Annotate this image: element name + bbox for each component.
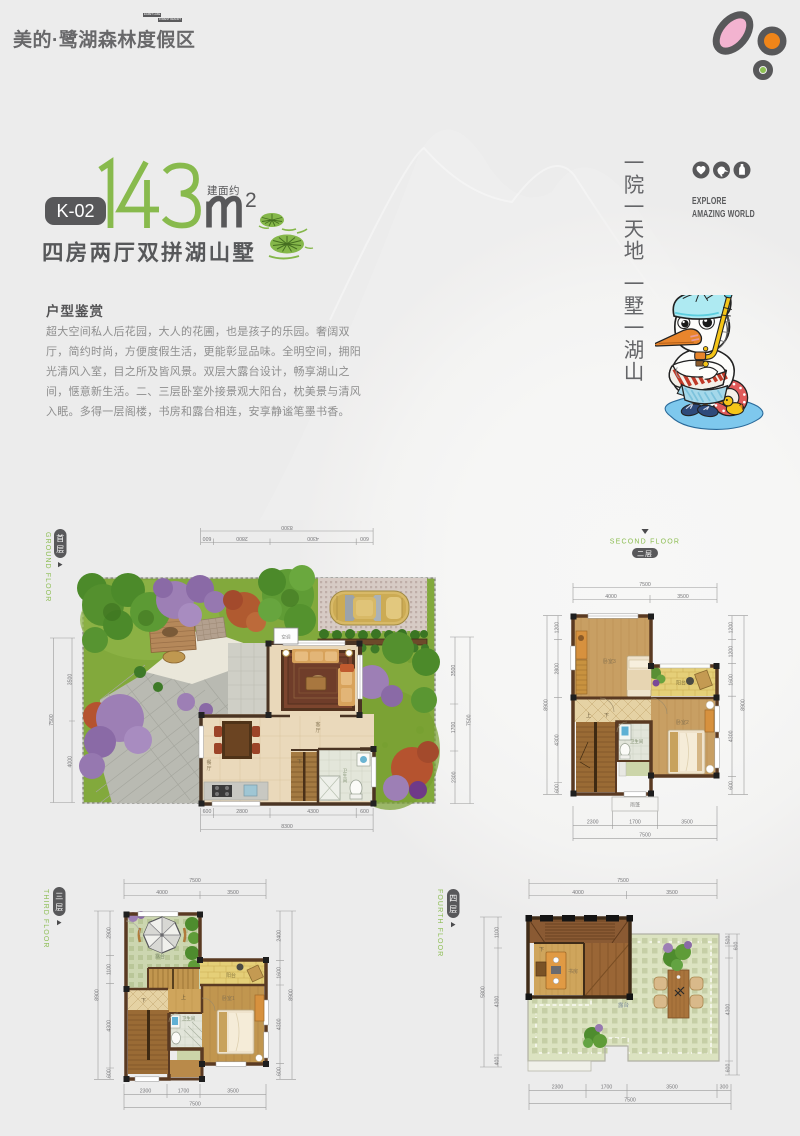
svg-text:7500: 7500 xyxy=(639,833,651,839)
svg-text:2300: 2300 xyxy=(140,1088,152,1094)
svg-text:2300: 2300 xyxy=(451,771,457,783)
svg-text:建面约: 建面约 xyxy=(207,184,240,197)
svg-text:4300: 4300 xyxy=(495,996,501,1008)
svg-text:1700: 1700 xyxy=(178,1088,190,1094)
svg-text:餐: 餐 xyxy=(206,759,211,766)
svg-text:8300: 8300 xyxy=(281,824,293,830)
svg-text:三: 三 xyxy=(55,892,63,901)
svg-text:4300: 4300 xyxy=(726,1004,732,1016)
svg-text:3500: 3500 xyxy=(666,1084,678,1090)
svg-text:8900: 8900 xyxy=(544,699,550,711)
svg-text:8900: 8900 xyxy=(95,989,101,1001)
svg-text:600: 600 xyxy=(203,809,212,815)
svg-text:300: 300 xyxy=(720,1084,729,1090)
svg-text:2800: 2800 xyxy=(236,809,248,815)
svg-text:下: 下 xyxy=(141,998,146,1004)
svg-text:3500: 3500 xyxy=(451,665,457,677)
svg-text:1200: 1200 xyxy=(555,622,561,634)
svg-text:4300: 4300 xyxy=(729,730,735,742)
svg-text:2300: 2300 xyxy=(552,1084,564,1090)
svg-text:FOURTH FLOOR: FOURTH FLOOR xyxy=(436,889,443,957)
svg-text:500: 500 xyxy=(726,936,732,945)
svg-text:层: 层 xyxy=(55,903,63,912)
svg-text:SECOND FLOOR: SECOND FLOOR xyxy=(610,539,680,546)
svg-text:上: 上 xyxy=(181,994,186,1001)
svg-text:1700: 1700 xyxy=(601,1084,613,1090)
svg-text:7500: 7500 xyxy=(49,714,55,726)
svg-text:4000: 4000 xyxy=(156,890,168,896)
svg-text:卧室3: 卧室3 xyxy=(603,658,616,665)
svg-text:7500: 7500 xyxy=(617,878,629,884)
svg-text:3500: 3500 xyxy=(681,820,693,826)
svg-text:下: 下 xyxy=(539,947,544,953)
svg-text:7500: 7500 xyxy=(466,714,472,726)
svg-text:7500: 7500 xyxy=(624,1097,636,1103)
svg-text:400: 400 xyxy=(495,1057,501,1066)
svg-text:2900: 2900 xyxy=(107,927,113,939)
svg-text:3500: 3500 xyxy=(666,890,678,896)
svg-text:2300: 2300 xyxy=(587,820,599,826)
svg-text:4300: 4300 xyxy=(277,1018,283,1030)
svg-text:空调: 空调 xyxy=(282,634,291,641)
svg-text:四: 四 xyxy=(449,894,457,903)
svg-text:阳台: 阳台 xyxy=(226,972,236,979)
svg-text:厅: 厅 xyxy=(315,728,320,734)
svg-text:600: 600 xyxy=(360,535,369,541)
svg-text:7500: 7500 xyxy=(189,1101,201,1107)
svg-text:3500: 3500 xyxy=(227,890,239,896)
svg-text:3500: 3500 xyxy=(68,674,74,686)
svg-text:8300: 8300 xyxy=(281,524,293,530)
svg-text:下: 下 xyxy=(297,759,302,765)
svg-text:1700: 1700 xyxy=(451,722,457,734)
svg-text:THIRD FLOOR: THIRD FLOOR xyxy=(42,889,49,949)
svg-text:卫生间: 卫生间 xyxy=(630,738,643,745)
svg-text:3500: 3500 xyxy=(677,594,689,600)
svg-text:600: 600 xyxy=(729,781,735,790)
svg-text:客: 客 xyxy=(315,721,320,728)
svg-text:雨蓬: 雨蓬 xyxy=(630,802,640,809)
svg-text:4000: 4000 xyxy=(572,890,584,896)
svg-text:书房: 书房 xyxy=(568,968,578,975)
svg-text:1200: 1200 xyxy=(729,622,735,634)
svg-text:8900: 8900 xyxy=(741,699,747,711)
svg-text:1700: 1700 xyxy=(629,820,641,826)
svg-text:2800: 2800 xyxy=(555,663,561,675)
svg-text:阳台: 阳台 xyxy=(676,680,686,687)
svg-text:600: 600 xyxy=(277,1067,283,1076)
svg-text:1100: 1100 xyxy=(107,964,113,975)
svg-text:4300: 4300 xyxy=(307,809,319,815)
svg-text:下: 下 xyxy=(604,713,609,719)
svg-text:600: 600 xyxy=(726,1064,732,1073)
svg-text:7500: 7500 xyxy=(639,582,651,588)
svg-text:600: 600 xyxy=(555,784,561,793)
svg-text:间: 间 xyxy=(343,777,347,784)
svg-text:2400: 2400 xyxy=(277,930,283,942)
svg-text:厅: 厅 xyxy=(206,766,211,772)
svg-text:600: 600 xyxy=(360,809,369,815)
svg-text:8900: 8900 xyxy=(289,989,295,1001)
svg-text:上: 上 xyxy=(586,712,591,719)
svg-text:1200: 1200 xyxy=(729,646,735,658)
svg-text:层: 层 xyxy=(449,905,457,914)
svg-text:1600: 1600 xyxy=(729,674,735,686)
svg-text:卫生间: 卫生间 xyxy=(182,1015,195,1022)
svg-text:露台: 露台 xyxy=(155,953,165,960)
svg-text:1100: 1100 xyxy=(495,927,501,938)
svg-text:卧室2: 卧室2 xyxy=(676,719,689,726)
svg-text:卧室1: 卧室1 xyxy=(222,995,235,1002)
svg-text:600: 600 xyxy=(734,942,740,951)
svg-text:二层: 二层 xyxy=(637,550,653,558)
svg-text:2800: 2800 xyxy=(236,535,248,541)
svg-text:GROUND FLOOR: GROUND FLOOR xyxy=(44,532,51,602)
svg-text:5800: 5800 xyxy=(481,986,487,998)
svg-text:600: 600 xyxy=(203,535,212,541)
svg-text:1600: 1600 xyxy=(277,967,283,979)
svg-text:层: 层 xyxy=(56,545,64,554)
svg-text:4300: 4300 xyxy=(307,535,319,541)
svg-text:露台: 露台 xyxy=(618,1001,630,1009)
svg-text:4300: 4300 xyxy=(555,734,561,746)
svg-text:4300: 4300 xyxy=(107,1020,113,1032)
svg-text:4000: 4000 xyxy=(605,594,617,600)
svg-text:600: 600 xyxy=(107,1069,113,1078)
svg-text:3500: 3500 xyxy=(227,1088,239,1094)
svg-text:首: 首 xyxy=(56,533,64,543)
svg-text:4000: 4000 xyxy=(67,756,73,768)
svg-text:7500: 7500 xyxy=(189,878,201,884)
